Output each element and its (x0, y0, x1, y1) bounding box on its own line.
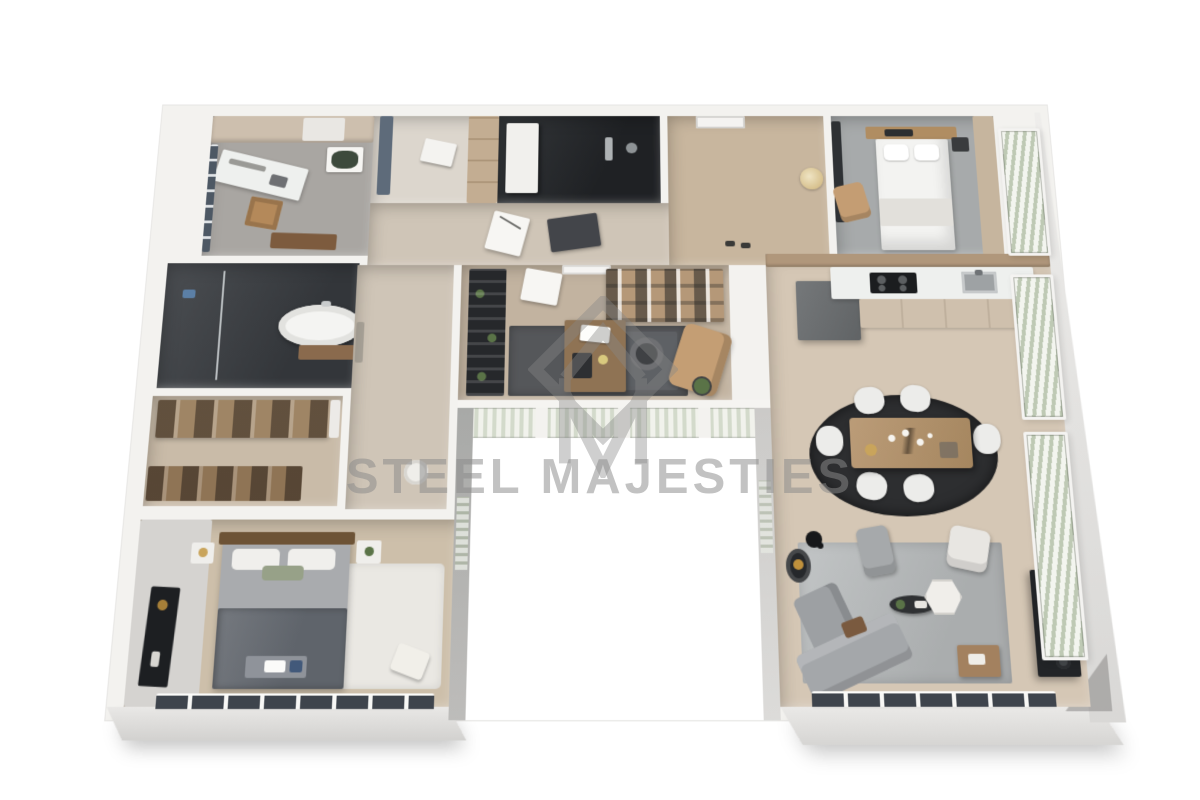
room-walkin-closet (143, 396, 343, 506)
study-upper-cabinet (302, 118, 345, 141)
hall-mirror-panel (420, 138, 457, 167)
room-shower (497, 116, 660, 203)
entry-shoes (725, 241, 735, 247)
courtyard-top-wall (458, 400, 771, 408)
kitchen-counter (830, 267, 1036, 299)
coffee-table-plant (896, 600, 906, 610)
office-monitor (579, 324, 610, 343)
coffee-table-book (914, 601, 927, 609)
study-desk-items (228, 158, 266, 172)
office-niche-shelf-unit (606, 269, 724, 322)
bed-headboard (219, 532, 356, 545)
hall-wardrobe-wood (467, 116, 500, 203)
entry-round-mirror (800, 168, 824, 190)
tv-decor-gold (157, 599, 169, 610)
study-wood-bench (270, 232, 337, 250)
cooktop (869, 273, 917, 294)
study-art-image (331, 151, 359, 169)
hall-blue-cabinet (377, 116, 394, 195)
closet-shelf-unit-south (145, 466, 302, 501)
bath-faucet (321, 301, 331, 307)
laundry-basket (403, 460, 428, 484)
office-desk (564, 320, 626, 392)
corridor-vertical (345, 265, 454, 509)
guest-headboard-shelf (865, 127, 957, 139)
courtyard-left-window (455, 497, 469, 570)
closet-shelf-unit-north (155, 400, 331, 438)
round-chair-gold-pillow (793, 559, 804, 570)
corridor-door-mat (355, 322, 365, 363)
shower-head (626, 143, 637, 154)
lamp-gold (198, 548, 208, 557)
courtyard-window-mullion-3 (698, 408, 711, 438)
courtyard-right-window (759, 480, 774, 553)
building-footprint (105, 106, 1104, 721)
exterior-wall-face-bottom-left (107, 707, 467, 741)
floor-lamp (805, 531, 822, 548)
room-bedroom-guest (831, 116, 1005, 255)
room-study (202, 116, 375, 256)
shower-glass-partition (215, 271, 226, 381)
office-bookshelf-black (466, 269, 507, 396)
courtyard-window-mullion-1 (535, 408, 547, 438)
guest-throw (879, 199, 954, 227)
corridor-art-sketch (499, 216, 521, 230)
dining-chair-left (815, 426, 844, 456)
bath-towel (182, 290, 195, 299)
kitchen-base-cabinets (859, 299, 1035, 328)
bedroom-south-windows (155, 693, 434, 711)
guest-side-table (951, 137, 969, 151)
exterior-wall-face-bottom-right (780, 707, 1123, 745)
shower-fixture (605, 137, 613, 160)
wood-side-table (957, 645, 1001, 677)
kitchen-sink (961, 272, 998, 294)
nightstand-right (356, 540, 382, 563)
bench-pillow-blue (289, 660, 302, 672)
room-bedroom-main (124, 520, 455, 707)
study-art-frame (326, 147, 364, 172)
floorplan-render-canvas: STEEL MAJESTIES (0, 0, 1200, 800)
front-door (696, 116, 745, 128)
office-plant (694, 378, 710, 394)
corridor-art-white (484, 210, 530, 256)
kitchen-backsplash-wood (765, 254, 1050, 267)
room-entry-hall (667, 116, 830, 265)
bed-pillow-accent (262, 566, 304, 581)
nightstand-plant (364, 547, 374, 556)
nightstand-left (190, 542, 214, 563)
tv-decor-white (150, 651, 160, 667)
corridor-art-dark (547, 213, 602, 253)
office-desk-lamp (598, 355, 608, 365)
bed-guest (875, 139, 955, 250)
closet-end-panel (329, 400, 341, 438)
study-chair (244, 196, 283, 230)
corridor-horizontal (367, 203, 669, 265)
table-branch-centerpiece (880, 428, 938, 454)
dining-chair-right (972, 424, 1002, 454)
study-laptop (269, 174, 289, 188)
study-window (202, 144, 219, 252)
courtyard-window-mullion-2 (618, 408, 630, 438)
courtyard-window-band (469, 408, 760, 438)
room-bathroom (157, 263, 360, 388)
room-hall-wardrobe (370, 116, 499, 203)
bed-foot-bench (245, 656, 308, 678)
office-art-frame (520, 268, 563, 306)
office-door (562, 265, 611, 274)
faucet (975, 270, 983, 276)
study-wall-cabinets (211, 116, 375, 143)
courtyard-notch (448, 400, 780, 720)
table-gold-bowl (865, 444, 878, 456)
room-office (458, 265, 732, 400)
guest-pillow-2 (914, 144, 940, 160)
living-south-windows (812, 691, 1057, 709)
guest-shelf-items (884, 129, 913, 136)
office-laptop (572, 353, 592, 378)
study-desk (213, 149, 309, 201)
dining-table (849, 418, 973, 468)
guest-pillow-1 (883, 144, 909, 160)
entry-shoes-2 (741, 243, 751, 249)
bench-tray (264, 660, 286, 672)
bathtub (277, 305, 362, 347)
table-setting (939, 442, 958, 458)
office-task-chair (630, 337, 664, 370)
shower-door-white (505, 123, 539, 193)
side-table-book (968, 654, 986, 665)
living-armchair-white (946, 524, 992, 574)
